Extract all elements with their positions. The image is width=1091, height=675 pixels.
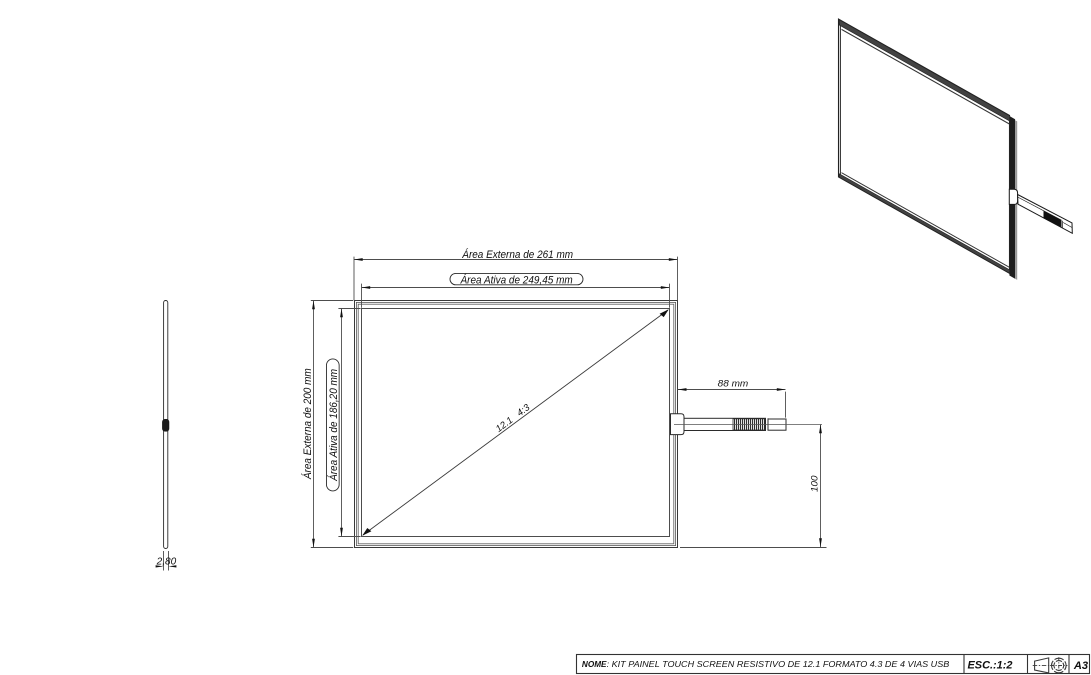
svg-text:88 mm: 88 mm xyxy=(718,379,749,389)
svg-text:NOME: NOME xyxy=(582,659,607,669)
svg-text:2,80: 2,80 xyxy=(156,556,177,567)
svg-text:Área Externa de 200 mm: Área Externa de 200 mm xyxy=(301,368,314,480)
svg-text:12.1 4:3: 12.1 4:3 xyxy=(494,402,533,435)
svg-text:: KIT PAINEL TOUCH SCREEN RESI: : KIT PAINEL TOUCH SCREEN RESISTIVO DE 1… xyxy=(607,659,950,669)
svg-text:100: 100 xyxy=(809,475,819,492)
svg-text:A3: A3 xyxy=(1073,660,1089,672)
svg-text:Área Externa de 261 mm: Área Externa de 261 mm xyxy=(461,248,573,261)
svg-text:ESC.:1:2: ESC.:1:2 xyxy=(968,659,1014,671)
svg-text:Área Ativa de 249,45 mm: Área Ativa de 249,45 mm xyxy=(460,273,573,286)
svg-text:Área Ativa de 186,20 mm: Área Ativa de 186,20 mm xyxy=(327,369,340,482)
